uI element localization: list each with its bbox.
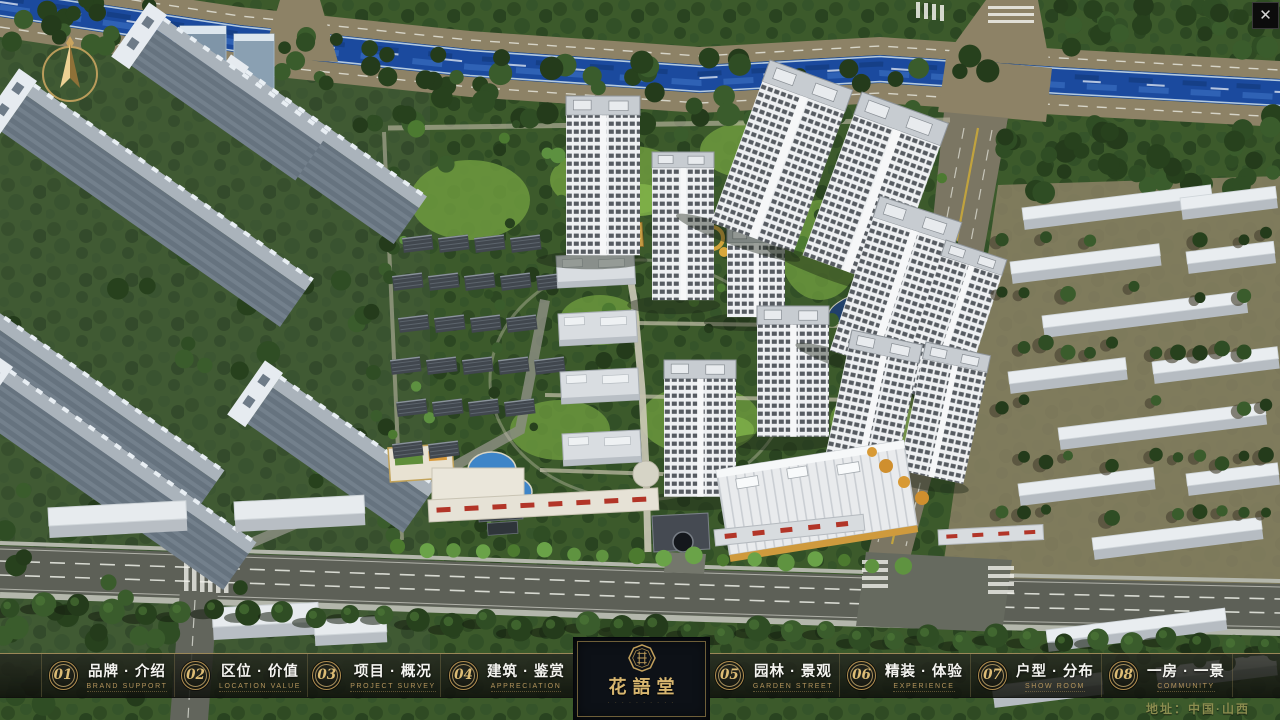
nav-label-zh: 精装 · 体验 — [885, 660, 963, 681]
nav-item-project-overview[interactable]: 03 项目 · 概况 PROJECT SURVEY — [308, 654, 441, 697]
nav-badge-06: 06 — [847, 661, 876, 690]
compass-north-arrow — [32, 30, 108, 110]
nav-item-brand-intro[interactable]: 01 品牌 · 介绍 BRAND SUPPORT — [42, 654, 175, 697]
nav-badge-07: 07 — [978, 661, 1007, 690]
nav-label-en: SHOW ROOM — [1025, 683, 1085, 692]
nav-label-en: GARDEN STREET — [753, 683, 833, 692]
nav-label-en: LOCATION VALUE — [219, 683, 301, 692]
nav-badge-01: 01 — [49, 661, 78, 690]
seal-emblem-icon — [628, 644, 656, 672]
masterplan-3d-map[interactable] — [0, 0, 1280, 720]
project-logo-caption: · · · · · · · · · · — [608, 700, 675, 706]
nav-badge-04: 04 — [449, 661, 478, 690]
nav-badge-08: 08 — [1109, 661, 1138, 690]
nav-item-architecture[interactable]: 04 建筑 · 鉴赏 APPRECIATION — [441, 654, 574, 697]
nav-item-landscape[interactable]: 05 园林 · 景观 GARDEN STREET — [709, 654, 840, 697]
nav-label-zh: 一房 · 一景 — [1147, 660, 1225, 681]
nav-label-zh: 品牌 · 介绍 — [88, 660, 166, 681]
nav-label-en: COMMUNITY — [1157, 683, 1215, 692]
navbar-spacer-left — [0, 654, 42, 697]
nav-label-en: BRAND SUPPORT — [87, 683, 168, 692]
nav-label-en: APPRECIATION — [491, 683, 562, 692]
masterplan-viewer: ✕ 01 品牌 · 介绍 BRAND SUPPORT 02 区位 · 价值 LO… — [0, 0, 1280, 720]
nav-label-zh: 建筑 · 鉴赏 — [487, 660, 565, 681]
nav-badge-02: 02 — [181, 661, 210, 690]
nav-label-zh: 户型 · 分布 — [1016, 660, 1094, 681]
project-address: 地址：中国·山西 — [1146, 700, 1250, 717]
nav-label-en: EXPERIENCE — [893, 683, 954, 692]
nav-item-location-value[interactable]: 02 区位 · 价值 LOCATION VALUE — [175, 654, 308, 697]
nav-label-zh: 项目 · 概况 — [354, 660, 432, 681]
nav-badge-03: 03 — [312, 661, 341, 690]
nav-item-floorplan-distribution[interactable]: 07 户型 · 分布 SHOW ROOM — [971, 654, 1102, 697]
close-button[interactable]: ✕ — [1252, 2, 1279, 29]
nav-label-zh: 园林 · 景观 — [754, 660, 832, 681]
nav-item-interior-experience[interactable]: 06 精装 · 体验 EXPERIENCE — [840, 654, 971, 697]
nav-label-zh: 区位 · 价值 — [221, 660, 299, 681]
close-icon: ✕ — [1259, 7, 1272, 24]
nav-item-room-view[interactable]: 08 一房 · 一景 COMMUNITY — [1102, 654, 1233, 697]
project-logo-plaque: 花語堂 · · · · · · · · · · — [574, 638, 709, 720]
project-logo-title: 花語堂 — [603, 673, 681, 699]
nav-badge-05: 05 — [715, 661, 744, 690]
nav-label-en: PROJECT SURVEY — [350, 683, 436, 692]
navbar-spacer-right — [1233, 654, 1280, 697]
